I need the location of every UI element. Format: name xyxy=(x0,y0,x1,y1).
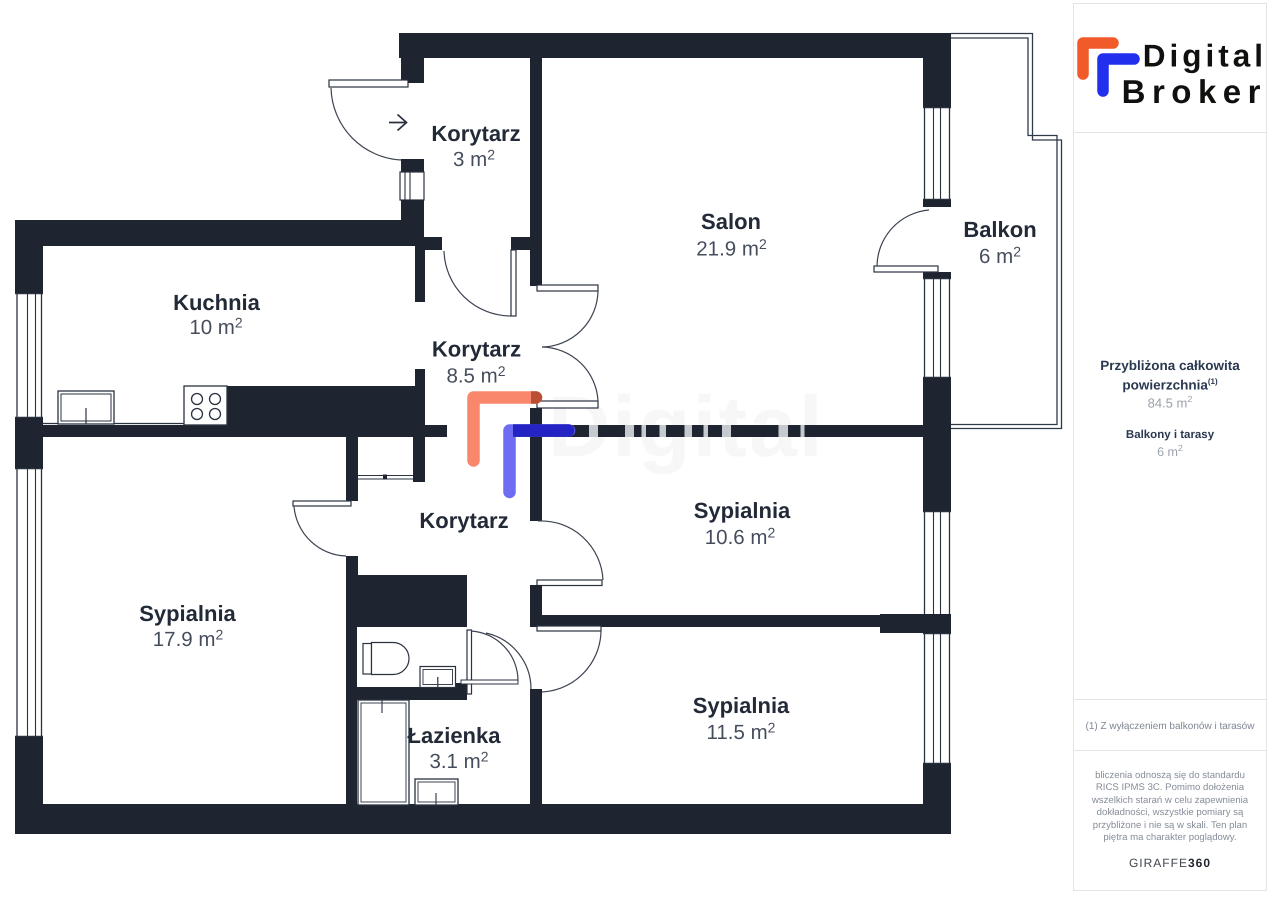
svg-text:Kuchnia: Kuchnia xyxy=(173,290,261,315)
svg-text:11.5 m2: 11.5 m2 xyxy=(707,720,776,745)
svg-text:17.9 m2: 17.9 m2 xyxy=(153,627,224,652)
svg-text:Salon: Salon xyxy=(701,209,761,234)
svg-text:Sypialnia: Sypialnia xyxy=(139,601,236,626)
svg-text:3.1 m2: 3.1 m2 xyxy=(429,749,488,774)
svg-text:21.9 m2: 21.9 m2 xyxy=(696,236,767,261)
svg-text:Balkon: Balkon xyxy=(963,217,1036,242)
svg-text:Sypialnia: Sypialnia xyxy=(694,498,791,523)
svg-text:Korytarz: Korytarz xyxy=(432,337,521,362)
svg-text:Korytarz: Korytarz xyxy=(431,121,520,146)
svg-text:Digital: Digital xyxy=(1143,38,1267,74)
svg-text:10.6 m2: 10.6 m2 xyxy=(705,525,776,550)
svg-text:10 m2: 10 m2 xyxy=(189,315,243,340)
svg-text:Łazienka: Łazienka xyxy=(408,723,502,748)
svg-text:Korytarz: Korytarz xyxy=(419,508,508,533)
svg-text:Sypialnia: Sypialnia xyxy=(693,693,790,718)
svg-text:8.5 m2: 8.5 m2 xyxy=(446,363,505,388)
svg-text:Broker: Broker xyxy=(1122,73,1267,110)
